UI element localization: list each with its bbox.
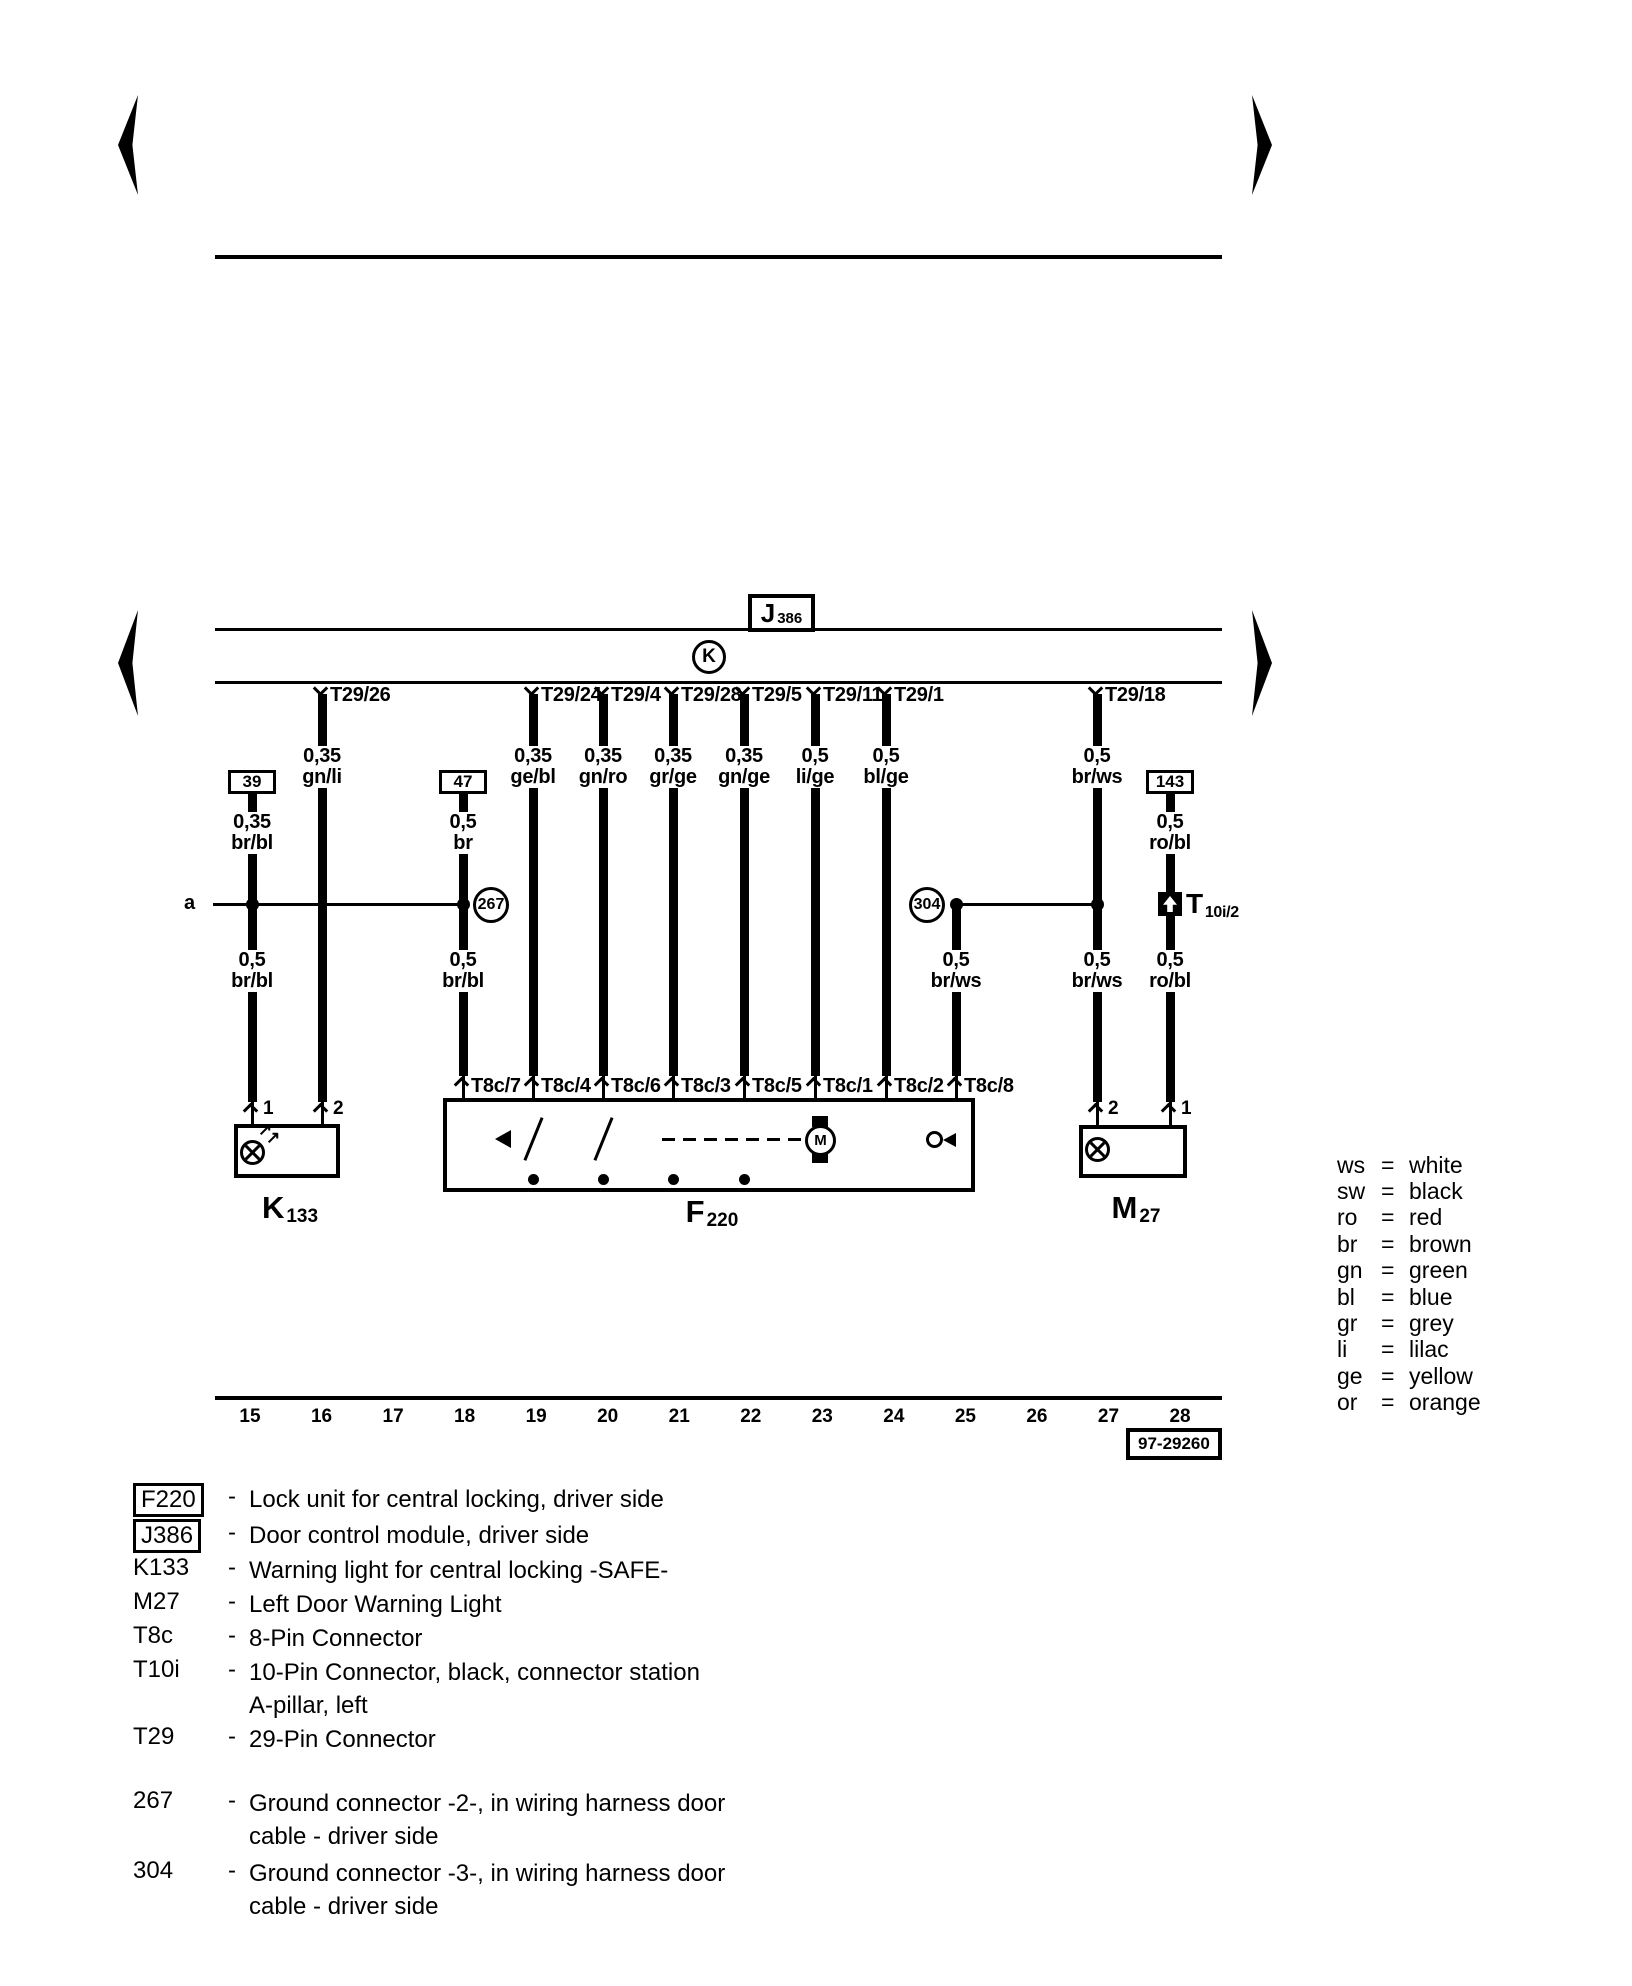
k133-lamp-icon (240, 1140, 265, 1165)
color-legend-row: gn=green (1337, 1258, 1481, 1284)
k133-letter: K (262, 1190, 284, 1225)
color-code: li (1337, 1336, 1381, 1363)
color-code: sw (1337, 1178, 1381, 1205)
f220-mechanical-link-dashed (662, 1138, 804, 1141)
color-legend-row: ro=red (1337, 1205, 1481, 1231)
component-list-row: 267-Ground connector -2-, in wiring harn… (133, 1787, 725, 1853)
wire-spec-label: 0,5br/bl (228, 950, 276, 992)
color-name: blue (1409, 1284, 1452, 1311)
component-k133-label: K133 (262, 1190, 318, 1226)
wire-spec-label: 0,5ro/bl (1146, 950, 1194, 992)
track-number: 17 (383, 1406, 404, 1428)
t29-pin-label: T29/28 (681, 684, 741, 707)
track-number: 20 (597, 1406, 618, 1428)
f220-lock-rod-arrow-icon (495, 1130, 511, 1148)
color-name: lilac (1409, 1336, 1449, 1363)
wire-color-legend: ws=whitesw=blackro=redbr=browngn=greenbl… (1337, 1152, 1481, 1416)
component-description: Left Door Warning Light (249, 1588, 502, 1621)
track-number: 18 (454, 1406, 475, 1428)
color-legend-row: bl=blue (1337, 1284, 1481, 1310)
equals-sign: = (1381, 1310, 1409, 1337)
t8c-pin-label: T8c/6 (611, 1075, 661, 1098)
equals-sign: = (1381, 1257, 1409, 1284)
wire-exit-arrow-icon (877, 1077, 893, 1093)
wire-spec-label: 0,5bl/ge (860, 746, 911, 788)
color-name: red (1409, 1204, 1442, 1231)
track-number: 23 (812, 1406, 833, 1428)
track-number: 27 (1098, 1406, 1119, 1428)
component-description: Ground connector -3-, in wiring harness … (249, 1857, 725, 1923)
wire-spec-label: 0,5br/bl (439, 950, 487, 992)
dash: - (219, 1656, 245, 1684)
component-list-row: J386-Door control module, driver side (133, 1519, 589, 1553)
color-legend-row: ws=white (1337, 1152, 1481, 1178)
component-code: 267 (133, 1787, 219, 1815)
t29-pin-label: T29/18 (1105, 684, 1165, 707)
t29-pin-label: T29/1 (894, 684, 944, 707)
m27-pin-number: 1 (1181, 1098, 1191, 1120)
m27-letter: M (1112, 1190, 1138, 1225)
junction-dot (246, 898, 259, 911)
color-name: orange (1409, 1389, 1481, 1416)
k133-pin-number: 2 (333, 1098, 343, 1120)
wire-spec-label: 0,5li/ge (793, 746, 838, 788)
component-code: F220 (133, 1483, 219, 1517)
f220-lock-cylinder-arrow-icon (943, 1133, 956, 1147)
junction-dot (528, 1174, 539, 1185)
wire-spec-label: 0,5br/ws (1069, 746, 1126, 788)
f220-lock-cylinder-icon (926, 1131, 943, 1148)
junction-dot (739, 1174, 750, 1185)
color-code: br (1337, 1231, 1381, 1258)
color-name: black (1409, 1178, 1463, 1205)
t8c-pin-label: T8c/2 (894, 1075, 944, 1098)
component-code: J386 (133, 1519, 219, 1553)
ground-connector-267-label: 267 (478, 896, 505, 914)
junction-dot (950, 898, 963, 911)
module-internal-symbol: K (692, 640, 726, 674)
terminal-box: 39 (228, 770, 276, 794)
module-number: 386 (777, 610, 802, 627)
dash: - (219, 1554, 245, 1582)
component-list-row: T10i-10-Pin Connector, black, connector … (133, 1656, 700, 1722)
wire-spec-label: 0,5br (447, 812, 480, 854)
track-number: 21 (669, 1406, 690, 1428)
color-legend-row: ge=yellow (1337, 1363, 1481, 1389)
component-description: 29-Pin Connector (249, 1723, 436, 1756)
component-description: Warning light for central locking -SAFE- (249, 1554, 668, 1587)
wire-exit-arrow-icon (524, 1077, 540, 1093)
component-list-row: 304-Ground connector -3-, in wiring harn… (133, 1857, 725, 1923)
track-number: 26 (1026, 1406, 1047, 1428)
t29-pin-label: T29/5 (752, 684, 802, 707)
component-code: T10i (133, 1656, 219, 1684)
color-legend-row: li=lilac (1337, 1337, 1481, 1363)
component-code: M27 (133, 1588, 219, 1616)
track-number: 25 (955, 1406, 976, 1428)
color-name: brown (1409, 1231, 1472, 1258)
wiring-diagram-page: J386 K a 267 304 K133 ↗ ↗ M27 F220 M (0, 0, 1632, 1986)
junction-dot (1091, 898, 1104, 911)
ground-connector-304: 304 (909, 887, 945, 923)
t29-pin-label: T29/11 (823, 684, 882, 707)
component-m27-label: M27 (1112, 1190, 1161, 1226)
color-code: ge (1337, 1363, 1381, 1390)
component-list-row: T29-29-Pin Connector (133, 1723, 436, 1756)
k133-led-arrow-icon: ↗ (266, 1128, 280, 1148)
bus-continues-left-arrow-icon (118, 610, 138, 716)
wire-spec-label: 0,5br/ws (928, 950, 985, 992)
ground-connector-267: 267 (473, 887, 509, 923)
component-description: 10-Pin Connector, black, connector stati… (249, 1656, 700, 1722)
component-description: Lock unit for central locking, driver si… (249, 1483, 664, 1516)
equals-sign: = (1381, 1336, 1409, 1363)
component-f220-box (443, 1098, 975, 1192)
color-legend-row: sw=black (1337, 1178, 1481, 1204)
terminal-box: 47 (439, 770, 487, 794)
color-legend-row: gr=grey (1337, 1310, 1481, 1336)
component-code: 304 (133, 1857, 219, 1885)
f220-motor-icon: M (805, 1125, 836, 1156)
t10i-connector-label: T10i/2 (1186, 888, 1239, 920)
t8c-pin-label: T8c/4 (541, 1075, 591, 1098)
wire-spec-label: 0,5br/ws (1069, 950, 1126, 992)
color-code: ws (1337, 1152, 1381, 1179)
wire-exit-arrow-icon (594, 1077, 610, 1093)
dash: - (219, 1588, 245, 1616)
color-legend-row: br=brown (1337, 1231, 1481, 1257)
ground-link-line-304 (956, 903, 1098, 906)
equals-sign: = (1381, 1363, 1409, 1390)
junction-dot (457, 898, 470, 911)
component-description: 8-Pin Connector (249, 1622, 422, 1655)
wire-spec-label: 0,35ge/bl (507, 746, 558, 788)
ground-connector-304-label: 304 (914, 896, 941, 914)
color-name: green (1409, 1257, 1468, 1284)
track-number: 16 (311, 1406, 332, 1428)
track-number: 15 (239, 1406, 260, 1428)
terminal-box: 143 (1146, 770, 1194, 794)
color-name: grey (1409, 1310, 1454, 1337)
wire-exit-arrow-icon (806, 1077, 822, 1093)
color-code: gr (1337, 1310, 1381, 1337)
wire-exit-arrow-icon (1161, 1103, 1177, 1119)
component-list-row: K133-Warning light for central locking -… (133, 1554, 668, 1587)
track-number: 19 (526, 1406, 547, 1428)
component-list-row: T8c-8-Pin Connector (133, 1622, 422, 1655)
color-legend-row: or=orange (1337, 1390, 1481, 1416)
equals-sign: = (1381, 1204, 1409, 1231)
wire-spec-label: 0,35gn/li (299, 746, 345, 788)
wire-exit-arrow-icon (735, 1077, 751, 1093)
m27-number: 27 (1139, 1206, 1160, 1227)
wire-exit-arrow-icon (454, 1077, 470, 1093)
track-number: 24 (883, 1406, 904, 1428)
module-letter: J (761, 598, 775, 629)
module-j386-box: J386 (748, 594, 815, 632)
t8c-pin-label: T8c/5 (752, 1075, 802, 1098)
t8c-pin-label: T8c/8 (964, 1075, 1014, 1098)
t8c-pin-label: T8c/1 (823, 1075, 873, 1098)
wire-spec-label: 0,5ro/bl (1146, 812, 1194, 854)
drawing-number-box: 97-29260 (1126, 1428, 1222, 1460)
color-code: gn (1337, 1257, 1381, 1284)
wire-spec-label: 0,35gn/ge (715, 746, 773, 788)
track-number: 22 (740, 1406, 761, 1428)
wire-exit-arrow-icon (313, 1103, 329, 1119)
wire-spec-label: 0,35gn/ro (576, 746, 631, 788)
f220-motor-letter: M (814, 1132, 827, 1149)
wire-exit-arrow-icon (243, 1103, 259, 1119)
component-description: Ground connector -2-, in wiring harness … (249, 1787, 725, 1853)
module-bus-line-top (215, 628, 1222, 631)
wire-exit-arrow-icon (1088, 1103, 1104, 1119)
color-name: white (1409, 1152, 1463, 1179)
f220-letter: F (686, 1194, 705, 1229)
track-number: 28 (1169, 1406, 1190, 1428)
equals-sign: = (1381, 1284, 1409, 1311)
m27-pin-number: 2 (1108, 1098, 1118, 1120)
junction-dot (598, 1174, 609, 1185)
t29-pin-label: T29/24 (541, 684, 601, 707)
component-code: T8c (133, 1622, 219, 1650)
t10i-connector-icon (1158, 892, 1182, 916)
component-code: K133 (133, 1554, 219, 1582)
k133-pin-number: 1 (263, 1098, 273, 1120)
junction-dot (668, 1174, 679, 1185)
t8c-pin-label: T8c/7 (471, 1075, 521, 1098)
dash: - (219, 1483, 245, 1511)
bus-continues-right-arrow-icon (1252, 610, 1272, 716)
color-code: bl (1337, 1284, 1381, 1311)
wire-spec-label: 0,35br/bl (228, 812, 276, 854)
t29-pin-label: T29/26 (330, 684, 390, 707)
component-f220-label: F220 (686, 1194, 739, 1230)
page-prev-arrow-icon (118, 95, 138, 195)
wire-exit-arrow-icon (947, 1077, 963, 1093)
color-code: ro (1337, 1204, 1381, 1231)
color-code: or (1337, 1389, 1381, 1416)
module-internal-symbol-letter: K (702, 646, 716, 668)
dash: - (219, 1857, 245, 1885)
equals-sign: = (1381, 1389, 1409, 1416)
component-list-row: F220-Lock unit for central locking, driv… (133, 1483, 664, 1517)
component-description: Door control module, driver side (249, 1519, 589, 1552)
equals-sign: = (1381, 1152, 1409, 1179)
m27-lamp-icon (1085, 1137, 1110, 1162)
drawing-number: 97-29260 (1138, 1434, 1210, 1453)
component-code: T29 (133, 1723, 219, 1751)
page-next-arrow-icon (1252, 95, 1272, 195)
equals-sign: = (1381, 1178, 1409, 1205)
equals-sign: = (1381, 1231, 1409, 1258)
section-label: a (184, 892, 195, 915)
dash: - (219, 1622, 245, 1650)
f220-number: 220 (707, 1210, 739, 1231)
t8c-pin-label: T8c/3 (681, 1075, 731, 1098)
k133-number: 133 (286, 1206, 318, 1227)
dash: - (219, 1519, 245, 1547)
color-name: yellow (1409, 1363, 1473, 1390)
header-rule (215, 255, 1222, 259)
component-list-row: M27-Left Door Warning Light (133, 1588, 502, 1621)
dash: - (219, 1723, 245, 1751)
track-rule (215, 1396, 1222, 1400)
wire-spec-label: 0,35gr/ge (646, 746, 699, 788)
dash: - (219, 1787, 245, 1815)
wire-exit-arrow-icon (664, 1077, 680, 1093)
t29-pin-label: T29/4 (611, 684, 661, 707)
